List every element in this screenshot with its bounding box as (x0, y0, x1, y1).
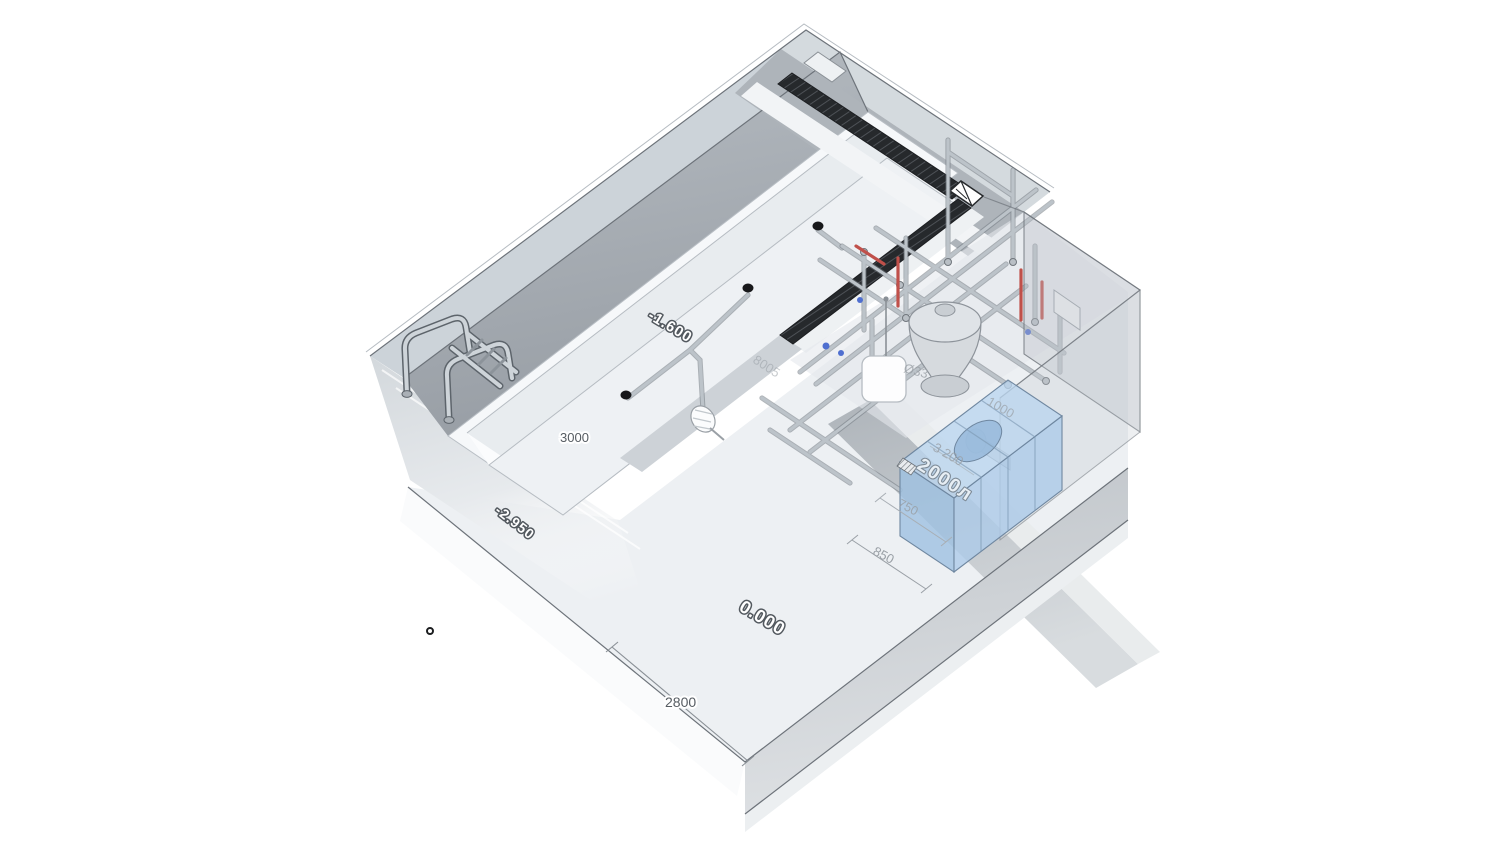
dim-3000: 3000 (560, 430, 589, 445)
pool-3d-scene: -1.600 0.000 -2.950 2000л 3000 2800 8005… (0, 0, 1500, 847)
inlet-nozzle-1 (621, 391, 632, 400)
ladder-anchor-2 (444, 417, 454, 424)
inlet-nozzle-3 (813, 222, 824, 231)
origin-marker (427, 628, 433, 634)
model-viewport: -1.600 0.000 -2.950 2000л 3000 2800 8005… (0, 0, 1500, 847)
inlet-nozzle-2 (743, 284, 754, 293)
dim-2800: 2800 (665, 694, 696, 710)
ladder-anchor-1 (402, 391, 412, 398)
